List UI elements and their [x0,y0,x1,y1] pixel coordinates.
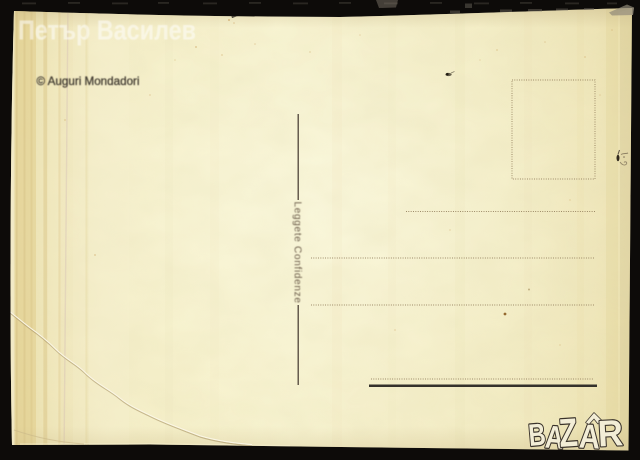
svg-text:R: R [597,412,624,454]
svg-text:Z: Z [557,410,579,456]
svg-text:Leggete Confidenze: Leggete Confidenze [292,202,303,304]
svg-text:Петър Василев: Петър Василев [18,15,196,46]
svg-text:© Auguri Mondadori: © Auguri Mondadori [37,75,140,88]
